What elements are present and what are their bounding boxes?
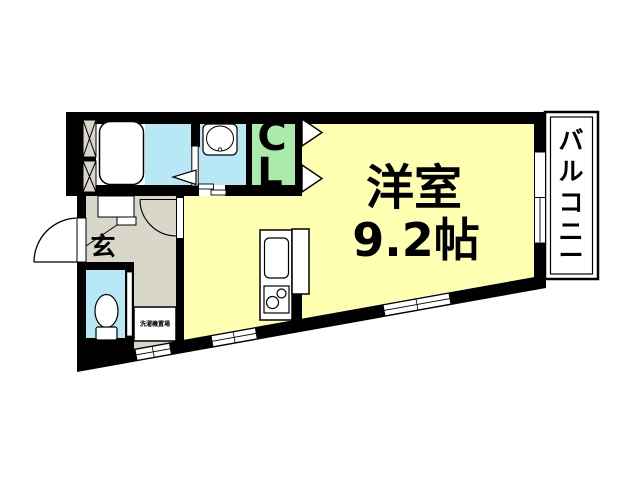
- balcony-label-char: バ: [558, 126, 583, 155]
- washing-machine-label: 洗濯機置場: [140, 320, 170, 328]
- balcony-window-icon: [535, 152, 546, 243]
- balcony-label-char: ー: [558, 241, 583, 270]
- balcony: バ ル コ ニ ー: [545, 112, 598, 279]
- washroom-sliding-door-icon: [211, 190, 226, 195]
- refrigerator-space: [292, 229, 309, 294]
- closet-label-char: L: [257, 150, 283, 196]
- wall-closet-right: [295, 124, 302, 189]
- main-room-name: 洋室: [366, 160, 462, 216]
- washroom-sliding-door-icon: [199, 184, 214, 189]
- main-room-size: 9.2帖: [352, 213, 480, 267]
- room-door-leaf: [177, 198, 184, 239]
- washbasin-icon: [203, 124, 237, 155]
- balcony-label-char: ル: [558, 157, 583, 186]
- entrance-label: 玄: [90, 232, 115, 261]
- pipe-space-icon: [83, 120, 96, 192]
- bathtub-icon: [100, 122, 144, 185]
- entrance-door-opening: [77, 218, 86, 262]
- wall-left-upper: [66, 112, 83, 196]
- floor-plan-page: バ ル コ ニ ー: [0, 0, 640, 480]
- toilet-door-leaf: [127, 272, 132, 336]
- wall-washroom-closet: [246, 124, 252, 185]
- entrance-step-icon: [117, 217, 136, 225]
- toilet-icon: [95, 295, 118, 341]
- balcony-label-char: コ: [558, 188, 583, 217]
- shoe-cabinet-icon: [98, 196, 134, 217]
- floor-plan: バ ル コ ニ ー: [0, 0, 640, 480]
- burner-icon: [277, 289, 286, 298]
- burner-icon: [267, 297, 279, 309]
- washing-machine-space: 洗濯機置場: [134, 307, 176, 341]
- wall-bath-washroom: [191, 124, 200, 147]
